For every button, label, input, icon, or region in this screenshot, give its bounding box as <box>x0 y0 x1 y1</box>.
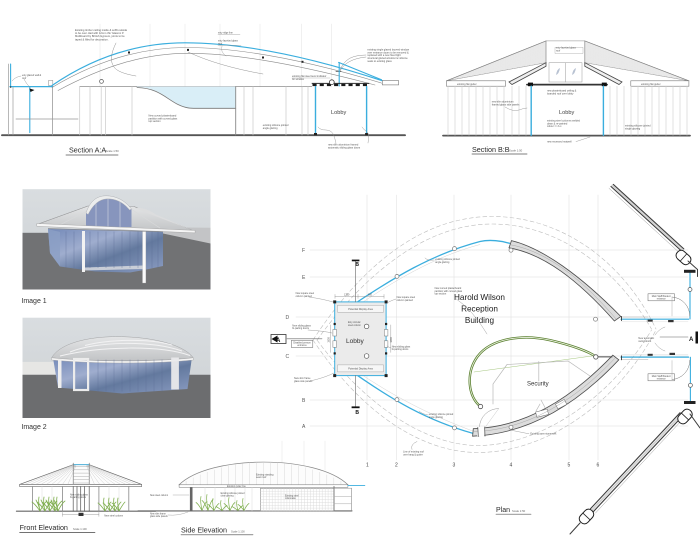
svg-text:A: A <box>689 337 694 343</box>
svg-text:entrance: entrance <box>657 297 667 300</box>
svg-text:Main Staff/Student: Main Staff/Student <box>652 375 671 378</box>
svg-text:colonnade: colonnade <box>285 498 296 500</box>
svg-text:automatic sliding glass doo: automatic sliding glass doors <box>328 146 361 149</box>
svg-text:New slim frame: New slim frame <box>150 513 167 516</box>
svg-text:Existing gutter line: Existing gutter line <box>227 485 246 488</box>
svg-text:Exty circular: Exty circular <box>348 321 361 324</box>
svg-text:entrance: entrance <box>297 344 307 347</box>
svg-text:angle glazing: angle glazing <box>435 261 450 264</box>
svg-text:800: 800 <box>368 293 373 296</box>
svg-text:Scale 1:100: Scale 1:100 <box>231 529 245 533</box>
svg-text:Existing silicone jointed: Existing silicone jointed <box>221 492 245 495</box>
svg-text:steel column: steel column <box>348 324 362 327</box>
svg-text:over hang & gutter: over hang & gutter <box>403 453 423 456</box>
svg-text:4: 4 <box>510 463 513 469</box>
svg-text:roof: roof <box>556 49 560 52</box>
svg-text:boarded roof over lobby: boarded roof over lobby <box>547 92 574 95</box>
svg-text:new recessed matwell: new recessed matwell <box>547 141 572 144</box>
svg-text:D: D <box>286 315 290 321</box>
svg-text:Side Elevation: Side Elevation <box>181 526 227 535</box>
svg-text:6: 6 <box>597 463 600 469</box>
svg-text:Lobby: Lobby <box>346 338 364 345</box>
svg-text:New steel column: New steel column <box>104 515 124 518</box>
svg-text:framed glass side panels: framed glass side panels <box>492 103 520 106</box>
svg-text:top section: top section <box>149 120 162 123</box>
svg-text:C: C <box>286 354 290 360</box>
svg-text:1750: 1750 <box>344 293 350 296</box>
svg-text:Security: Security <box>527 382 549 388</box>
svg-text:Front Elevation: Front Elevation <box>20 523 68 532</box>
svg-text:F: F <box>302 248 305 254</box>
svg-text:1: 1 <box>366 463 369 469</box>
svg-text:top section: top section <box>435 293 447 296</box>
svg-text:existing flat gutter: existing flat gutter <box>641 83 661 86</box>
svg-text:5: 5 <box>568 463 571 469</box>
svg-text:bi-parting doors: bi-parting doors <box>292 327 309 330</box>
svg-text:Image 1: Image 1 <box>21 298 46 305</box>
svg-text:Main Staff/Student: Main Staff/Student <box>652 295 671 298</box>
svg-text:single glazing: single glazing <box>625 127 641 130</box>
svg-text:column painted: column painted <box>296 295 313 298</box>
svg-text:Existing steel: Existing steel <box>285 495 299 498</box>
svg-text:B: B <box>355 410 359 416</box>
svg-text:Lobby: Lobby <box>331 110 346 116</box>
svg-text:bi-parting doors: bi-parting doors <box>392 348 409 351</box>
svg-text:taped & filled for decoration.: taped & filled for decoration. <box>75 37 109 41</box>
svg-text:swing doors: swing doors <box>638 340 652 343</box>
svg-text:Existing standing: Existing standing <box>256 474 274 477</box>
svg-text:clear glazing: clear glazing <box>221 495 235 498</box>
svg-text:glass side panels: glass side panels <box>294 380 313 383</box>
svg-text:B: B <box>355 262 359 268</box>
svg-text:Building: Building <box>465 316 495 325</box>
svg-text:roof: roof <box>218 42 222 45</box>
svg-text:New steel column: New steel column <box>150 494 169 497</box>
svg-text:existing flat gutter: existing flat gutter <box>457 83 477 86</box>
svg-text:Potential Display Area: Potential Display Area <box>348 368 373 371</box>
svg-text:1800: 1800 <box>328 337 331 343</box>
svg-text:1800: 1800 <box>390 337 393 343</box>
svg-text:Image 2: Image 2 <box>21 424 46 431</box>
svg-text:angle glazing: angle glazing <box>429 416 444 419</box>
svg-text:3: 3 <box>453 463 456 469</box>
svg-text:exty ridge line: exty ridge line <box>218 32 233 35</box>
svg-text:Plan: Plan <box>496 507 510 514</box>
svg-text:entrance: entrance <box>657 377 667 380</box>
svg-text:for window: for window <box>292 78 304 81</box>
svg-text:glass side panels: glass side panels <box>150 516 168 518</box>
svg-text:Scale 1:50: Scale 1:50 <box>106 149 120 153</box>
svg-text:Scale 1:50: Scale 1:50 <box>512 509 526 513</box>
svg-text:Section A:A: Section A:A <box>69 145 106 154</box>
svg-text:Reception: Reception <box>461 305 498 314</box>
svg-text:2: 2 <box>395 463 398 469</box>
svg-text:Lobby: Lobby <box>559 110 574 116</box>
svg-text:seam roof: seam roof <box>256 476 267 479</box>
svg-text:Harold Wilson: Harold Wilson <box>454 293 505 302</box>
svg-text:seals to existing glass: seals to existing glass <box>367 60 392 63</box>
svg-text:bi-parting doors: bi-parting doors <box>70 496 87 499</box>
svg-text:angle glazing: angle glazing <box>263 127 278 130</box>
svg-text:Scale 1:100: Scale 1:100 <box>73 527 87 531</box>
svg-text:colour = t.b.c.: colour = t.b.c. <box>547 125 562 128</box>
svg-text:Section B:B: Section B:B <box>472 145 510 154</box>
svg-text:Potential Display Area: Potential Display Area <box>348 308 373 311</box>
svg-text:Scale 1:50: Scale 1:50 <box>509 149 523 153</box>
svg-text:Existing open stonework: Existing open stonework <box>530 433 557 436</box>
svg-text:column painted: column painted <box>397 299 414 302</box>
